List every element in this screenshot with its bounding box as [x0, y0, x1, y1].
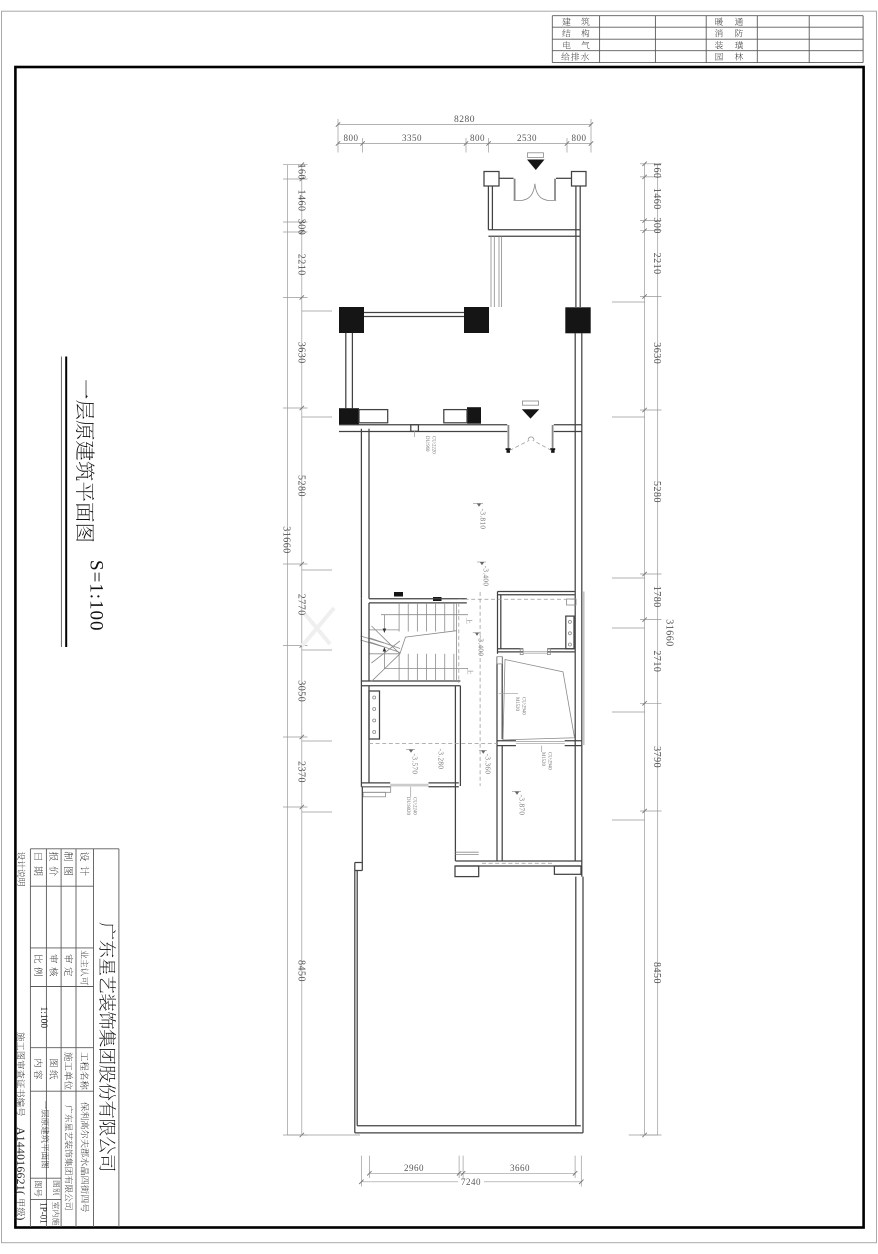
svg-text:3050: 3050: [296, 680, 307, 702]
svg-text:-3.810: -3.810: [479, 509, 488, 530]
svg-text:-3.400: -3.400: [477, 636, 486, 657]
svg-text:1:100: 1:100: [38, 1006, 48, 1028]
svg-text:-3.360: -3.360: [484, 754, 493, 775]
svg-text:M1520: M1520: [514, 697, 519, 711]
svg-text:1P-01: 1P-01: [39, 1202, 49, 1224]
svg-text:2710: 2710: [651, 650, 662, 672]
svg-text:8280: 8280: [454, 115, 475, 125]
svg-text:5280: 5280: [651, 481, 662, 503]
svg-text:31660: 31660: [664, 619, 675, 647]
svg-text:-3.400: -3.400: [482, 566, 491, 587]
svg-text:A144016621(: A144016621(: [14, 1127, 26, 1195]
svg-text:2370: 2370: [296, 761, 307, 783]
svg-text:CU:2240: CU:2240: [411, 797, 416, 815]
svg-text:3350: 3350: [402, 133, 422, 143]
svg-text:800: 800: [470, 133, 485, 143]
svg-text:800: 800: [344, 133, 359, 143]
svg-text:2770: 2770: [296, 594, 307, 616]
svg-text:2530: 2530: [517, 133, 537, 143]
svg-text:2960: 2960: [404, 1163, 424, 1173]
svg-text:3630: 3630: [296, 342, 307, 364]
svg-text:2210: 2210: [296, 254, 307, 276]
svg-text:): ): [14, 1217, 26, 1221]
svg-text:3790: 3790: [651, 746, 662, 768]
svg-text:3630: 3630: [651, 342, 662, 364]
svg-text:CU:2940: CU:2940: [546, 752, 551, 770]
svg-text:M1520: M1520: [540, 752, 545, 766]
svg-text:160: 160: [296, 164, 307, 181]
svg-text:-3.870: -3.870: [518, 795, 527, 816]
svg-text:CU:2940: CU:2940: [520, 697, 525, 715]
svg-text:1460: 1460: [651, 188, 662, 210]
svg-text:160: 160: [651, 162, 662, 179]
svg-text:3660: 3660: [510, 1163, 530, 1173]
svg-text:31660: 31660: [281, 526, 292, 554]
svg-text:CU:2220: CU:2220: [430, 436, 435, 454]
svg-text:300: 300: [651, 217, 662, 234]
svg-text:-3.570: -3.570: [410, 754, 419, 775]
svg-text:7240: 7240: [461, 1177, 481, 1187]
svg-text:1460: 1460: [296, 190, 307, 212]
svg-text:800: 800: [572, 133, 587, 143]
svg-text:DU:8020: DU:8020: [405, 797, 410, 815]
svg-text:8450: 8450: [296, 960, 307, 982]
svg-text:2210: 2210: [651, 253, 662, 275]
svg-text:5280: 5280: [296, 475, 307, 497]
svg-text:-3.280: -3.280: [437, 749, 446, 770]
svg-text:8450: 8450: [651, 962, 662, 984]
svg-text:DU:960: DU:960: [424, 436, 429, 452]
svg-text:1780: 1780: [651, 586, 662, 608]
svg-text:300: 300: [296, 219, 307, 236]
svg-text:S=1:100: S=1:100: [85, 560, 106, 632]
